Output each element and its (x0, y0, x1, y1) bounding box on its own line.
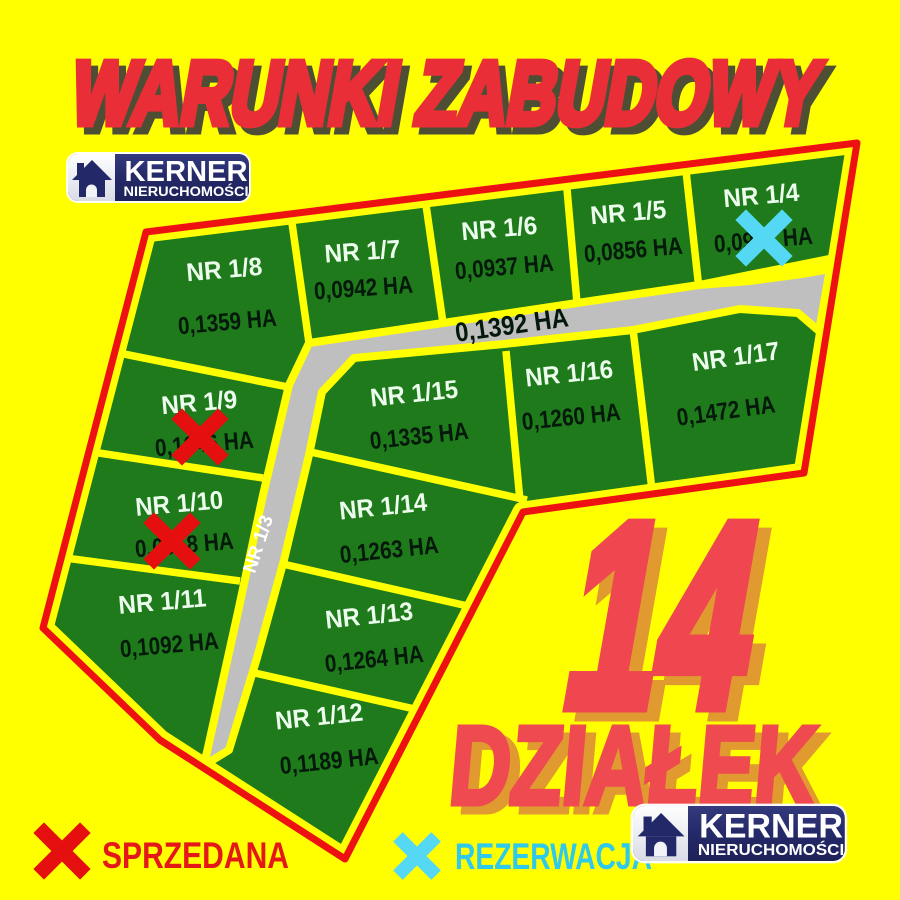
svg-text:NIERUCHOMOŚCI: NIERUCHOMOŚCI (698, 840, 844, 859)
svg-text:SPRZEDANA: SPRZEDANA (102, 835, 289, 876)
svg-text:NIERUCHOMOŚCI: NIERUCHOMOŚCI (124, 184, 249, 199)
svg-text:WARUNKI ZABUDOWY: WARUNKI ZABUDOWY (64, 44, 829, 144)
svg-text:KERNER: KERNER (699, 808, 843, 846)
svg-text:NR 1/7: NR 1/7 (324, 235, 402, 268)
svg-text:REZERWACJA: REZERWACJA (455, 836, 652, 877)
